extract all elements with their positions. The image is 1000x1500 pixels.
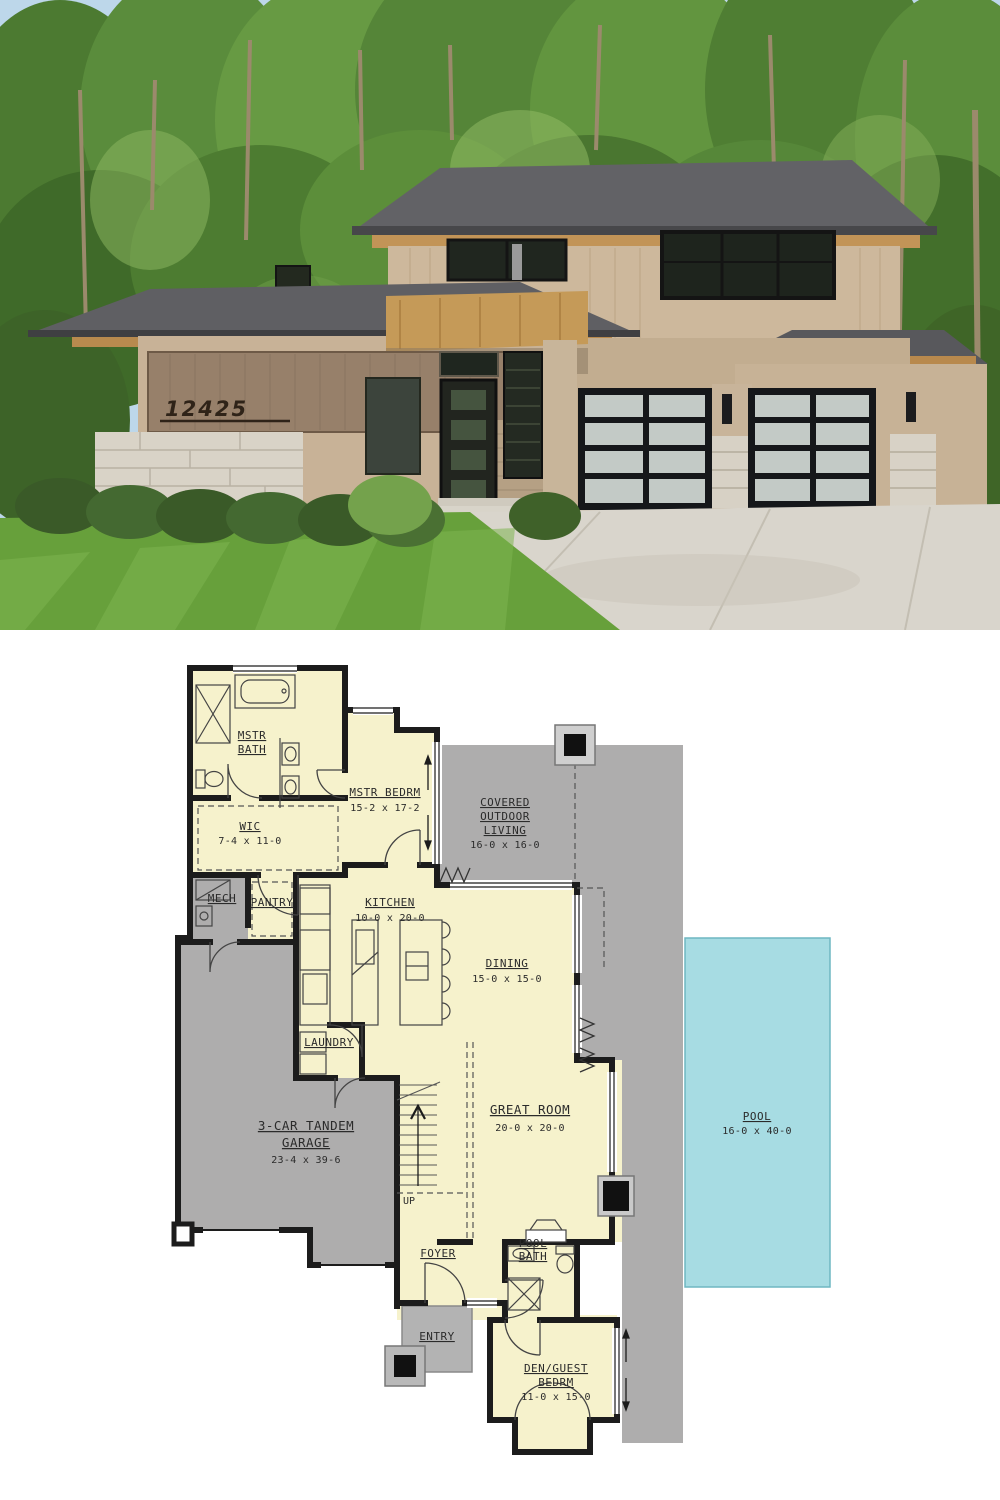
upper-roof: [352, 160, 935, 232]
svg-text:LIVING: LIVING: [484, 824, 527, 837]
label-den-guest: DEN/GUEST: [524, 1362, 588, 1375]
svg-text:16-0 x 16-0: 16-0 x 16-0: [470, 840, 540, 851]
svg-text:BATH: BATH: [238, 743, 267, 756]
house-number: 12425: [165, 397, 248, 421]
svg-text:16-0 x 40-0: 16-0 x 40-0: [722, 1126, 792, 1137]
label-dining: DINING: [486, 957, 529, 970]
entry-transom-window: [440, 352, 498, 376]
svg-text:BATH: BATH: [519, 1250, 548, 1263]
label-great-room: GREAT ROOM: [490, 1102, 570, 1117]
label-kitchen: KITCHEN: [365, 896, 415, 909]
house-photo: 12425: [0, 0, 1000, 630]
label-covered-outdoor: COVERED: [480, 796, 530, 809]
label-mstr-bath: MSTR: [238, 729, 267, 742]
garage-door-2: [748, 388, 876, 508]
label-foyer: FOYER: [420, 1247, 456, 1260]
svg-text:GARAGE: GARAGE: [282, 1135, 330, 1150]
mech-area: [190, 875, 248, 942]
svg-text:10-0 x 20-0: 10-0 x 20-0: [355, 913, 425, 924]
label-mstr-bedrm: MSTR BEDRM: [349, 786, 420, 799]
svg-text:BEDRM: BEDRM: [538, 1376, 574, 1389]
garage-pillar-right: [890, 366, 936, 508]
garage-door-1: [578, 388, 712, 510]
svg-text:15-0 x 15-0: 15-0 x 15-0: [472, 974, 542, 985]
pin-image: 12425: [0, 0, 1000, 1500]
label-laundry: LAUNDRY: [304, 1036, 354, 1049]
garage-corner-pier: [174, 1224, 192, 1244]
upper-window-far-left: [276, 266, 310, 288]
label-wic: WIC: [239, 820, 260, 833]
great-room-area: [440, 1040, 622, 1242]
dining-area: [437, 885, 577, 1060]
entry-column: [385, 1346, 425, 1386]
label-pool-bath: POOL: [519, 1237, 548, 1250]
stairs-up-label: UP: [403, 1196, 415, 1207]
roof-flue: [512, 244, 522, 280]
svg-text:11-0 x 15-0: 11-0 x 15-0: [521, 1392, 591, 1403]
label-pool: POOL: [743, 1110, 772, 1123]
floor-plan: UP MSTR BATH WIC 7-4 x 1: [0, 630, 1000, 1500]
outdoor-column: [555, 725, 595, 765]
svg-text:23-4 x 39-6: 23-4 x 39-6: [271, 1155, 341, 1166]
svg-text:OUTDOOR: OUTDOOR: [480, 810, 530, 823]
label-pantry: PANTRY: [251, 896, 294, 909]
svg-text:7-4 x 11-0: 7-4 x 11-0: [218, 836, 281, 847]
greatroom-column: [598, 1176, 634, 1216]
label-garage: 3-CAR TANDEM: [258, 1118, 354, 1133]
label-entry: ENTRY: [419, 1330, 455, 1343]
wall-sconce-1: [722, 394, 732, 424]
entry-pillar: [543, 340, 577, 508]
wall-sconce-2: [906, 392, 916, 422]
upper-window-right: [662, 232, 834, 298]
svg-text:20-0 x 20-0: 20-0 x 20-0: [495, 1123, 565, 1134]
den-closet-bulge: [515, 1420, 590, 1452]
svg-text:15-2 x 17-2: 15-2 x 17-2: [350, 803, 420, 814]
label-mech: MECH: [208, 892, 237, 905]
entry-side-panel-door: [366, 378, 420, 474]
